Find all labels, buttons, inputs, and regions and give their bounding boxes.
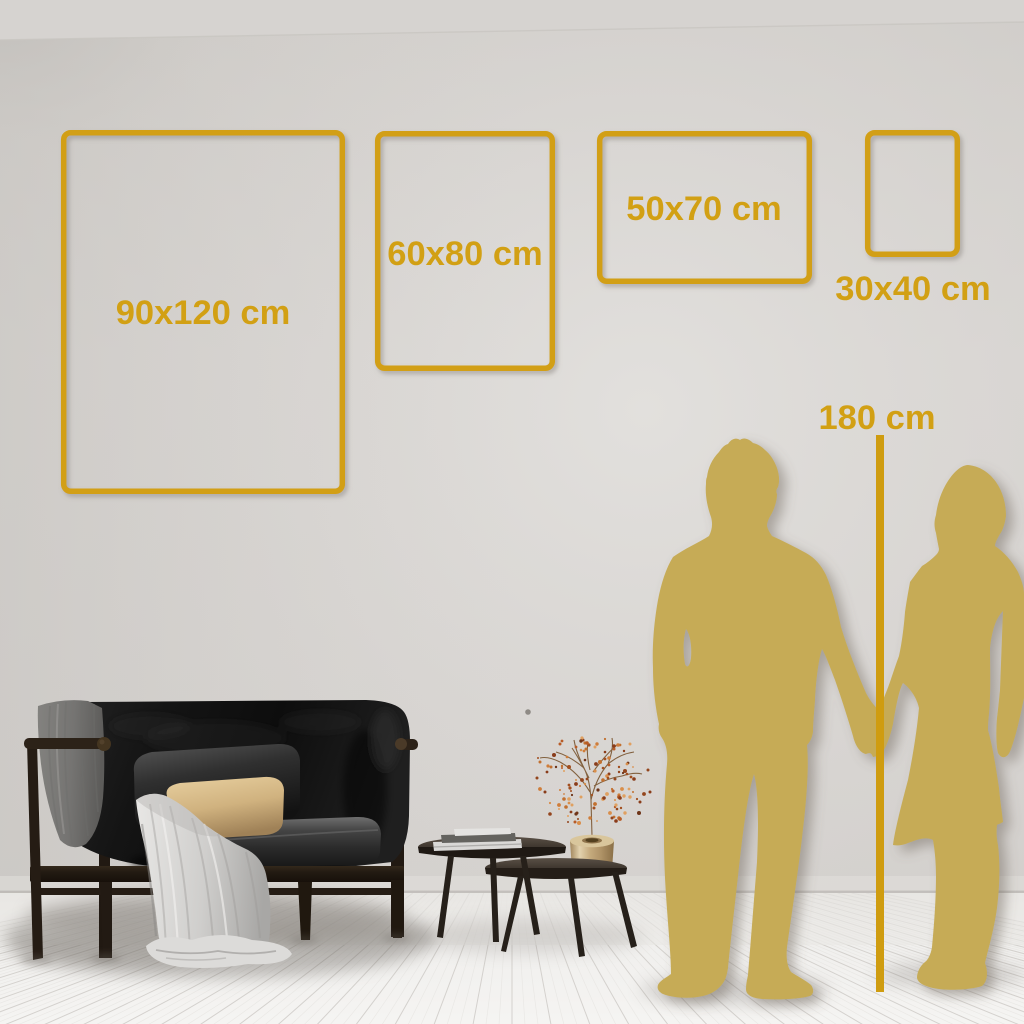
svg-text:30x40 cm: 30x40 cm [835,270,990,308]
svg-text:180 cm: 180 cm [818,399,935,437]
svg-text:50x70 cm: 50x70 cm [626,190,781,228]
svg-text:60x80 cm: 60x80 cm [387,235,542,273]
svg-text:90x120 cm: 90x120 cm [116,294,291,332]
